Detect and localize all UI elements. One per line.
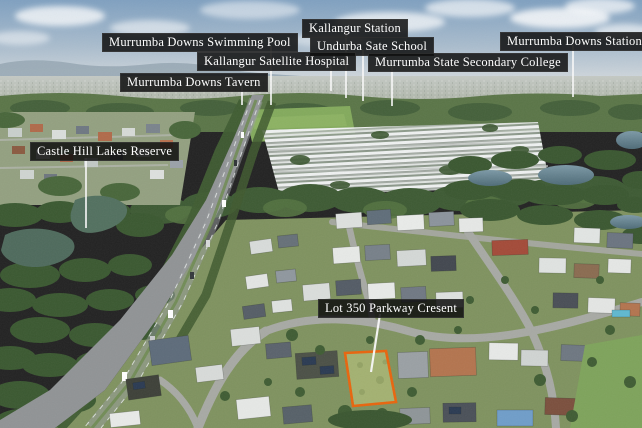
label-castle-hill-lakes-reserve: Castle Hill Lakes Reserve xyxy=(30,142,179,161)
label-lot-350-parkway-cresent: Lot 350 Parkway Cresent xyxy=(318,299,464,318)
label-murrumba-downs-tavern: Murrumba Downs Tavern xyxy=(120,73,268,92)
label-murrumba-downs-station: Murrumba Downs Station xyxy=(500,32,642,51)
label-kallangur-station: Kallangur Station xyxy=(302,19,408,38)
label-kallangur-satellite-hospital: Kallangur Satellite Hospital xyxy=(197,52,356,71)
aerial-photo: Murrumba Downs Swimming Pool Kallangur S… xyxy=(0,0,642,428)
label-murrumba-state-secondary-college: Murrumba State Secondary College xyxy=(368,53,568,72)
label-murrumba-downs-swimming-pool: Murrumba Downs Swimming Pool xyxy=(102,33,298,52)
